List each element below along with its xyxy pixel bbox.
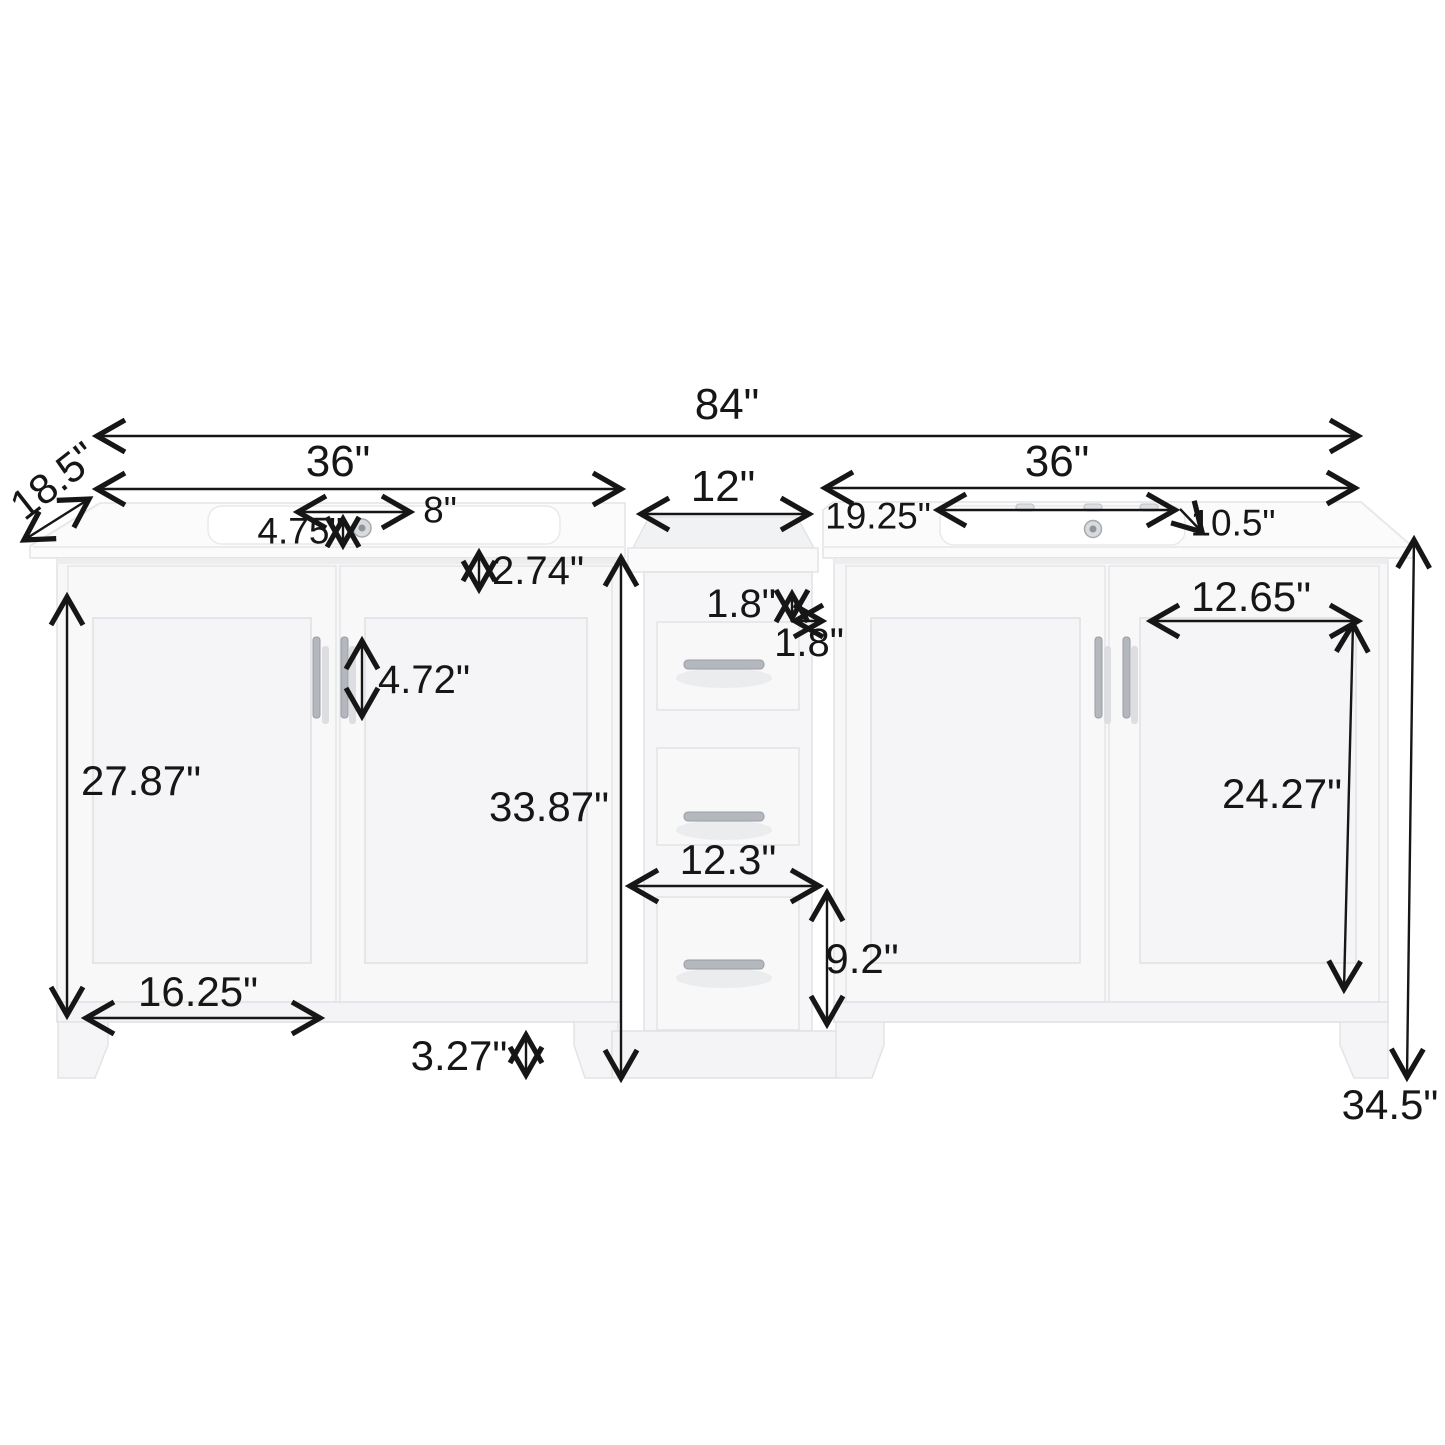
dim-label-right-panel-width: 12.65" <box>1191 576 1311 618</box>
right-door-1-panel <box>871 618 1080 963</box>
left-door-2-handle <box>341 637 348 718</box>
vanity-dimension-diagram: 84" 36" 36" 18.5" 12" 4.75" 8" 2.74" 19.… <box>0 0 1445 1445</box>
left-door-1-handle <box>313 637 320 718</box>
dim-label-left-vanity-width: 36" <box>306 440 371 484</box>
dim-label-drawer-side-gap: 1.8" <box>774 623 844 663</box>
right-sink-basin <box>940 506 1185 545</box>
middle-counter-band <box>628 548 818 572</box>
left-faucet-hole-center <box>359 525 366 532</box>
right-door-2-handle <box>1123 637 1130 718</box>
handle-shadow <box>1131 646 1138 724</box>
dim-label-left-door-height: 27.87" <box>81 760 201 802</box>
dim-label-right-panel-height: 24.27" <box>1222 773 1342 815</box>
handle-shadow <box>676 668 772 688</box>
dim-label-right-sink-width: 19.25" <box>825 498 931 535</box>
handle-shadow <box>349 646 356 724</box>
handle-shadow <box>322 646 329 724</box>
middle-drawer-3-handle <box>684 960 764 969</box>
right-counter-shadow <box>834 558 1388 564</box>
dim-line-overall-height <box>1407 540 1414 1077</box>
dim-label-handle-length: 4.72" <box>378 660 470 700</box>
middle-counter-top <box>633 517 814 548</box>
dim-label-counter-thickness: 2.74" <box>492 551 584 591</box>
dim-label-drawer-top-gap: 1.8" <box>706 584 776 624</box>
diagram-graphics <box>0 0 1445 1445</box>
dim-label-left-faucet-offset: 4.75" <box>257 513 342 550</box>
dim-label-middle-width: 12" <box>691 465 756 509</box>
dim-label-overall-height: 34.5" <box>1342 1084 1439 1126</box>
handle-shadow <box>676 968 772 988</box>
dim-label-faucet-spacing: 8" <box>423 492 457 529</box>
dim-label-bottom-drawer-height: 9.2" <box>825 938 898 980</box>
right-front-left-leg <box>836 1022 884 1078</box>
dim-label-leg-height: 3.27" <box>411 1035 508 1077</box>
left-front-left-leg <box>58 1022 108 1078</box>
handle-shadow <box>1104 646 1111 724</box>
middle-cabinet-base <box>612 1031 840 1078</box>
dim-label-left-panel-width: 16.25" <box>138 971 258 1013</box>
right-base-rail <box>834 1002 1388 1022</box>
dim-label-right-sink-depth: 10.5" <box>1190 505 1275 542</box>
right-front-right-leg <box>1340 1022 1388 1078</box>
middle-drawer-2-handle <box>684 812 764 821</box>
dim-label-overall-width: 84" <box>695 383 760 427</box>
dim-label-right-vanity-width: 36" <box>1025 440 1090 484</box>
middle-drawer-1-handle <box>684 660 764 669</box>
right-faucet-hole-center <box>1090 526 1097 533</box>
dim-label-middle-outer-width: 12.3" <box>680 839 777 881</box>
right-door-1-handle <box>1095 637 1102 718</box>
dim-label-middle-height: 33.87" <box>489 786 609 828</box>
